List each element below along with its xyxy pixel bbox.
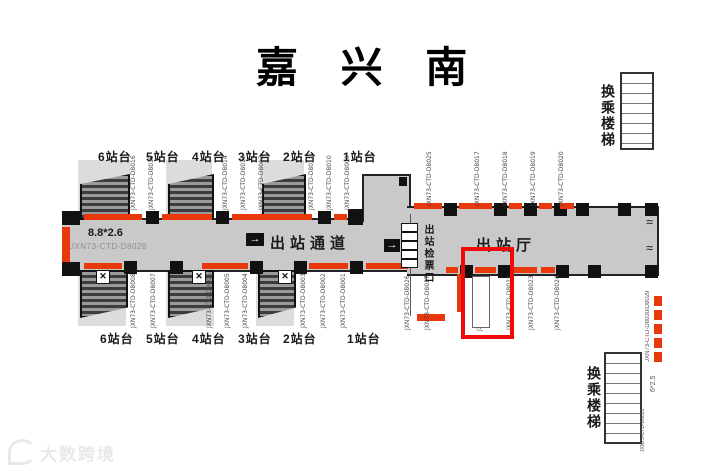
platform-label: 5站台 (146, 330, 180, 347)
column-block (146, 211, 159, 224)
platform-label: 2站台 (283, 330, 317, 347)
direction-arrow-icon: → (246, 233, 264, 246)
ad-position-bar (541, 267, 555, 273)
ad-position-bar (446, 267, 458, 273)
column-block (348, 209, 363, 225)
column-block (645, 265, 658, 278)
ad-code-label: JXN73-CTD-D8027 (424, 276, 431, 330)
platform-label: 6站台 (98, 148, 132, 165)
ad-code-label: JXN73-CTD-D8024 (554, 276, 561, 330)
ad-code-label: JXN73-CTD-D8020 (558, 152, 565, 206)
door-squiggle-icon: ≀≀ (643, 219, 654, 225)
ad-position-bar (513, 267, 537, 273)
ad-code-label: JXN73-CTD-D8005 (224, 274, 231, 328)
ticket-gate (401, 259, 418, 268)
ad-position-bar (509, 203, 522, 209)
gate-arrow-icon: → (384, 239, 400, 252)
escalator-ad-bar (654, 296, 662, 362)
column-block (399, 177, 407, 186)
ad-position-bar (309, 263, 348, 269)
watermark-logo-icon (8, 439, 36, 465)
transfer-stairs-icon (620, 72, 654, 150)
door-squiggle-icon: ≀≀ (643, 245, 654, 251)
ad-position-bar (232, 214, 312, 220)
ad-code-label: JXN73-CTD-D8014 (222, 156, 229, 210)
column-block (618, 203, 631, 216)
transfer-stairs-icon (604, 352, 642, 444)
ad-code-label: JXN73-CTD-D8012 (258, 156, 265, 210)
ad-code-label: JXN73-CTD-D8006 (206, 274, 213, 328)
ad-position-bar (334, 214, 347, 220)
ticket-gate (401, 250, 418, 259)
escalator-x-icon: ✕ (96, 270, 110, 284)
ad-code-label: JXN73-CTD-D8017 (474, 152, 481, 206)
column-block (645, 203, 658, 216)
ad-size-label: 6*2.5 (650, 370, 657, 392)
ad-position-bar (84, 214, 142, 220)
exit-gates-label: 出站检票口 (420, 224, 435, 284)
column-block (216, 211, 229, 224)
ad-code-label: JXN73-CTD-D8019 (530, 152, 537, 206)
ad-position-bar-large (62, 227, 70, 262)
ad-code-label: JXN73-CTD-D8008 (130, 274, 137, 328)
page-title: 嘉 兴 南 (256, 34, 481, 95)
watermark: 大数跨境 (8, 439, 116, 465)
station-map: 嘉 兴 南 ✕ ✕ ✕ (0, 0, 721, 471)
escalator-x-icon: ✕ (278, 270, 292, 284)
ad-code-label: JXN73-CTD-D8023 (528, 276, 535, 330)
ad-position-bar (539, 203, 552, 209)
transfer-stairs-label: 换乘楼梯 (584, 366, 604, 430)
ticket-gate (401, 232, 418, 241)
ad-code-label: JXN73-CTD-D8026 (404, 276, 411, 330)
ad-code-label: JXN73-CTD-D8007 (150, 274, 157, 328)
ad-code-label: JXN73-CTD-D8011 (308, 156, 315, 210)
escalator-x-icon: ✕ (192, 270, 206, 284)
ad-code-label: JXN73-CTD-D8018 (502, 152, 509, 206)
ad-size-label: 8.8*2.6 (88, 227, 123, 239)
column-block (170, 261, 183, 274)
highlighted-ad-position (472, 276, 490, 328)
column-block (350, 261, 363, 274)
platform-label: 1站台 (347, 330, 381, 347)
column-block (576, 203, 589, 216)
watermark-text: 大数跨境 (40, 440, 116, 465)
column-block (250, 261, 263, 274)
ad-code-label: JXN73-CTD-D8010 (326, 156, 333, 210)
ad-code-label: JXN73-CTD-D8004 (242, 274, 249, 328)
platform-label: 4站台 (192, 330, 226, 347)
ad-code-label: JXN73-CTD-D8003 (300, 274, 307, 328)
ad-position-bar (202, 263, 248, 269)
ad-code-label: JXN73-CTD-D8025 (426, 152, 433, 206)
platform-label: 6站台 (100, 330, 134, 347)
column-block (62, 262, 80, 276)
column-block (62, 211, 80, 225)
ad-code-label: JXN73-CTD-D8016 (130, 156, 137, 210)
column-block (588, 265, 601, 278)
ad-position-bar (417, 314, 445, 321)
transfer-stairs-label: 换乘楼梯 (598, 84, 618, 148)
ad-code-label: JXN73-CTD-D8031 (640, 424, 646, 452)
ad-position-bar (162, 214, 212, 220)
column-block (318, 211, 331, 224)
column-block (444, 203, 457, 216)
ad-code-label: JXN73-CTD-D8009 (344, 156, 351, 210)
ad-code-label: JXN73-CTD-D8001 (340, 274, 347, 328)
ad-code-label: JXN73-CTD-D8030/D8029 (645, 296, 651, 362)
ad-code-label: JXN73-CTD-D8015 (148, 156, 155, 210)
ad-code-label: JXN73-CTD-D8013 (240, 156, 247, 210)
ad-code-label: JXN73-CTD-D8028 (70, 242, 147, 251)
ticket-gate (401, 241, 418, 250)
platform-label: 4站台 (192, 148, 226, 165)
platform-label: 3站台 (238, 330, 272, 347)
exit-corridor-label: 出站通道 (270, 232, 350, 253)
ticket-gate (401, 223, 418, 232)
ad-position-bar (84, 263, 122, 269)
ad-code-label: JXN73-CTD-D8002 (320, 274, 327, 328)
